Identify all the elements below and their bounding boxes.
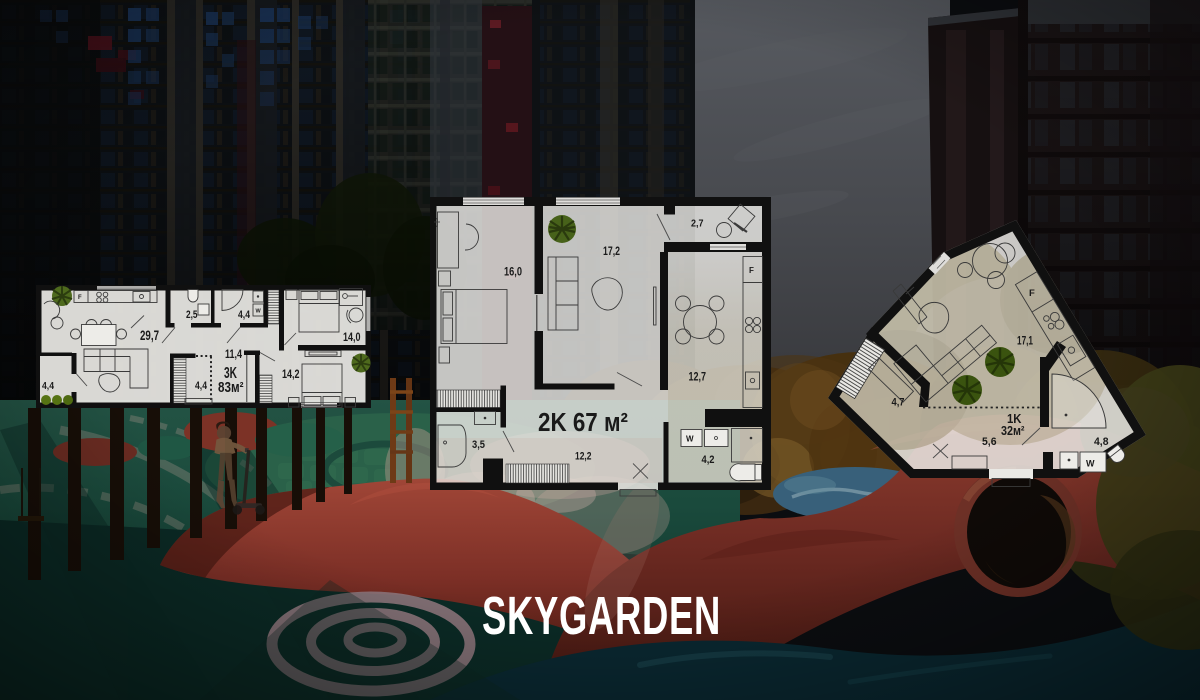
svg-text:4,8: 4,8	[1094, 436, 1109, 448]
svg-text:14,2: 14,2	[282, 369, 300, 381]
svg-text:4,4: 4,4	[195, 380, 208, 392]
svg-text:32м²: 32м²	[1001, 423, 1025, 438]
svg-text:83м²: 83м²	[218, 380, 244, 396]
svg-text:F: F	[749, 266, 754, 275]
svg-text:2K 67 м²: 2K 67 м²	[538, 409, 628, 437]
svg-text:4,4: 4,4	[238, 309, 251, 321]
svg-text:W: W	[1086, 459, 1095, 469]
svg-text:12,2: 12,2	[575, 451, 592, 463]
svg-text:W: W	[686, 435, 694, 444]
svg-text:4,4: 4,4	[42, 380, 54, 392]
svg-text:3,5: 3,5	[472, 439, 485, 451]
svg-text:14,0: 14,0	[343, 332, 361, 344]
svg-text:F: F	[78, 295, 82, 301]
svg-text:2,5: 2,5	[186, 309, 198, 321]
svg-text:2,7: 2,7	[691, 218, 704, 230]
svg-text:29,7: 29,7	[140, 328, 159, 343]
svg-text:4,2: 4,2	[702, 454, 715, 466]
svg-text:12,7: 12,7	[689, 370, 707, 384]
svg-text:F: F	[1029, 288, 1035, 299]
svg-text:16,0: 16,0	[504, 265, 522, 279]
svg-text:17,2: 17,2	[603, 244, 620, 258]
svg-text:11,4: 11,4	[225, 349, 242, 361]
svg-text:W: W	[256, 309, 262, 315]
svg-text:4,7: 4,7	[892, 397, 905, 409]
svg-text:5,6: 5,6	[982, 436, 997, 448]
svg-text:17,1: 17,1	[1017, 334, 1033, 348]
